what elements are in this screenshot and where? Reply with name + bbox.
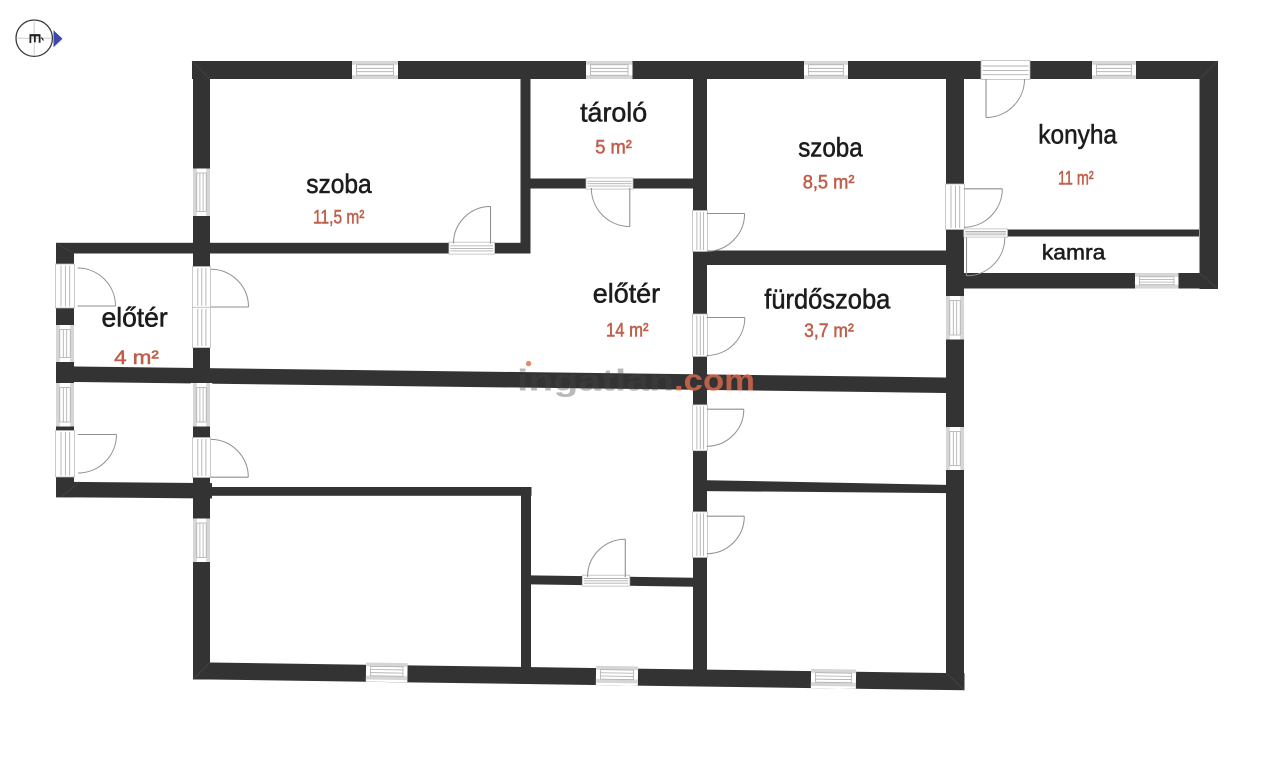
svg-text:11 m²: 11 m² [1058,168,1094,190]
svg-text:fürdőszoba: fürdőszoba [764,284,891,315]
svg-text:előtér: előtér [593,278,660,308]
svg-text:konyha: konyha [1038,120,1118,150]
svg-text:kamra: kamra [1042,241,1105,265]
svg-text:szoba: szoba [306,169,372,199]
svg-text:14 m²: 14 m² [606,320,649,342]
svg-text:4 m²: 4 m² [114,347,159,369]
svg-text:É: É [25,33,44,44]
svg-text:tároló: tároló [580,98,647,128]
svg-text:.com: .com [674,363,755,398]
svg-text:3,7 m²: 3,7 m² [804,320,854,342]
svg-text:ingatlan: ingatlan [517,363,674,398]
svg-text:5 m²: 5 m² [595,137,632,159]
svg-text:előtér: előtér [102,303,168,333]
svg-text:11,5 m²: 11,5 m² [313,207,365,229]
svg-text:szoba: szoba [798,133,863,163]
svg-text:8,5 m²: 8,5 m² [803,172,855,194]
